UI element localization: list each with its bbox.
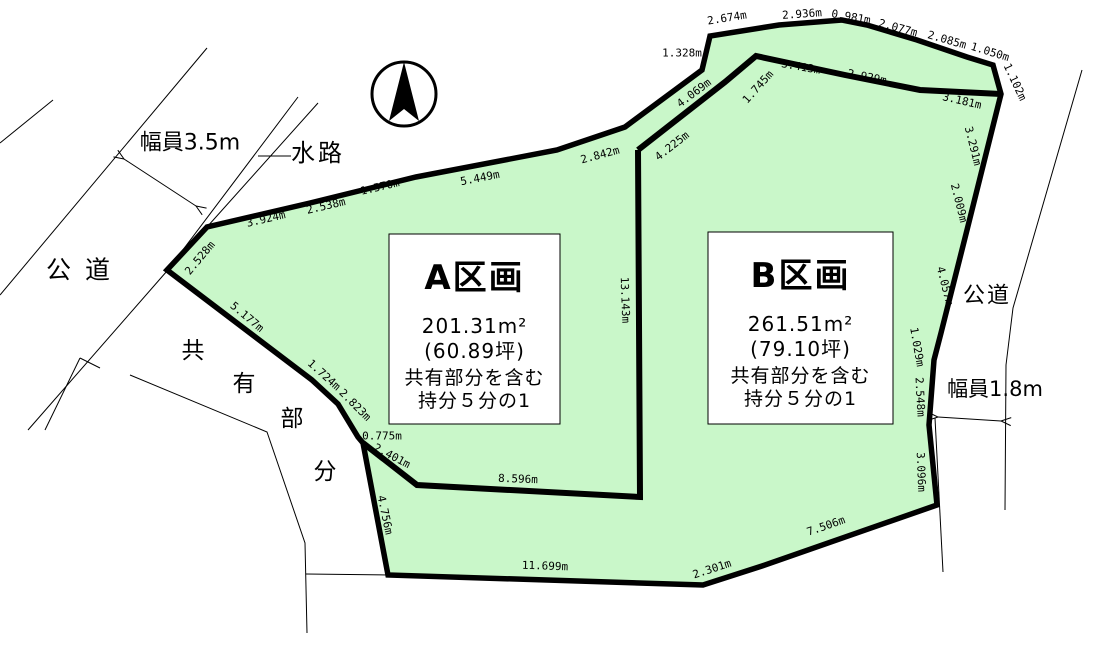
shared-area-label-char-1: 共 <box>182 338 205 364</box>
measurement-label: 3.096m <box>914 452 928 493</box>
north-arrow-needle <box>389 62 419 121</box>
parcel-b-info-box-line-1: 261.51m² <box>748 312 853 336</box>
shared-area-bottom-line <box>306 574 388 575</box>
road-width-label-east: 幅員1.8m <box>947 377 1043 401</box>
road-label-east: 公道 <box>963 284 1011 309</box>
measurement-label: 0.775m <box>362 430 402 443</box>
road-width-arrow-west <box>124 159 196 206</box>
measurement-label: 8.596m <box>498 472 539 486</box>
parcel-b-info-box-line-4: 持分５分の1 <box>744 388 857 410</box>
measurement-label: 2.674m <box>706 8 748 27</box>
parcel-b-info-box-title: B区画 <box>751 256 851 296</box>
road-width-label-west: 幅員3.5m <box>140 131 240 156</box>
shared-area-label-char-2: 有 <box>233 371 256 397</box>
waterway-label: 水路 <box>291 139 345 167</box>
measurement-label: 13.143m <box>618 277 633 324</box>
shared-area-label-char-3: 部 <box>281 406 304 432</box>
parcel-b-info-box-line-2: (79.10坪) <box>750 337 851 361</box>
site-plan: 2.528m3.924m2.538m1.570m5.449m2.842m4.06… <box>0 0 1104 651</box>
parcel-a-info-box-line-1: 201.31m² <box>422 314 527 338</box>
measurement-label: 1.102m <box>1001 61 1030 103</box>
east-road-edge-line <box>1005 70 1082 510</box>
shared-area-label-char-4: 分 <box>314 459 337 485</box>
measurement-label: 2.548m <box>912 377 927 418</box>
road-label-west: 公道 <box>46 256 124 285</box>
measurement-label: 1.328m <box>662 47 702 60</box>
parcel-a-info-box-line-3: 共有部分を含む <box>404 367 544 389</box>
parcel-a-info-box-line-2: (60.89坪) <box>424 339 525 363</box>
parcel-jog-line-2 <box>45 358 80 430</box>
parcel-a-info-box-title: A区画 <box>424 258 524 298</box>
parcel-b-info-box-line-3: 共有部分を含む <box>730 365 870 387</box>
road-width-arrow-east <box>938 417 1001 421</box>
parcel-a-info-box-line-4: 持分５分の1 <box>418 390 531 412</box>
site-plan-drawing: 2.528m3.924m2.538m1.570m5.449m2.842m4.06… <box>0 0 1104 651</box>
measurement-label: 11.699m <box>522 559 569 574</box>
west-road-far-edge-line <box>0 100 53 143</box>
